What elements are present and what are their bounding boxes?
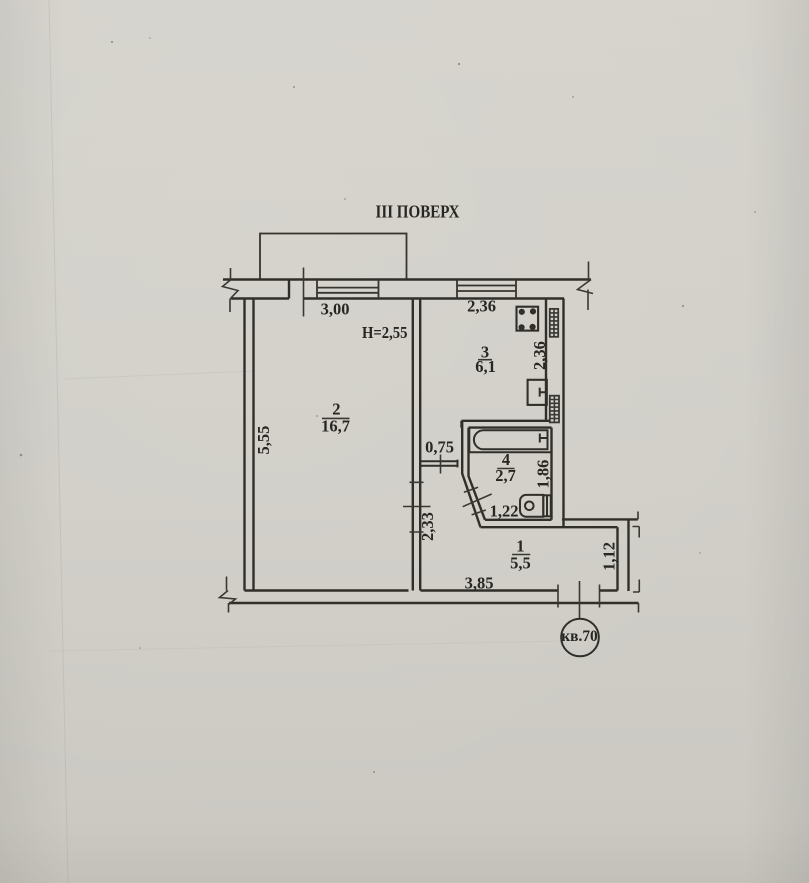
svg-text:III ПОВЕРХ: III ПОВЕРХ — [376, 202, 460, 222]
svg-text:2,7: 2,7 — [495, 466, 516, 485]
svg-text:2,33: 2,33 — [418, 512, 437, 541]
svg-text:5,55: 5,55 — [254, 426, 273, 455]
svg-text:H=2,55: H=2,55 — [362, 323, 408, 342]
svg-text:3,00: 3,00 — [321, 300, 350, 319]
svg-text:2,36: 2,36 — [467, 297, 496, 316]
svg-text:1,86: 1,86 — [534, 460, 553, 489]
svg-text:1,12: 1,12 — [600, 542, 619, 571]
svg-text:кв.70: кв.70 — [561, 628, 598, 645]
svg-text:0,75: 0,75 — [425, 438, 454, 457]
svg-text:6,1: 6,1 — [475, 357, 496, 376]
svg-text:16,7: 16,7 — [321, 417, 350, 436]
svg-text:5,5: 5,5 — [510, 554, 531, 573]
svg-text:1,22: 1,22 — [490, 502, 519, 521]
svg-text:3,85: 3,85 — [465, 574, 494, 593]
svg-text:2,36: 2,36 — [530, 341, 549, 370]
